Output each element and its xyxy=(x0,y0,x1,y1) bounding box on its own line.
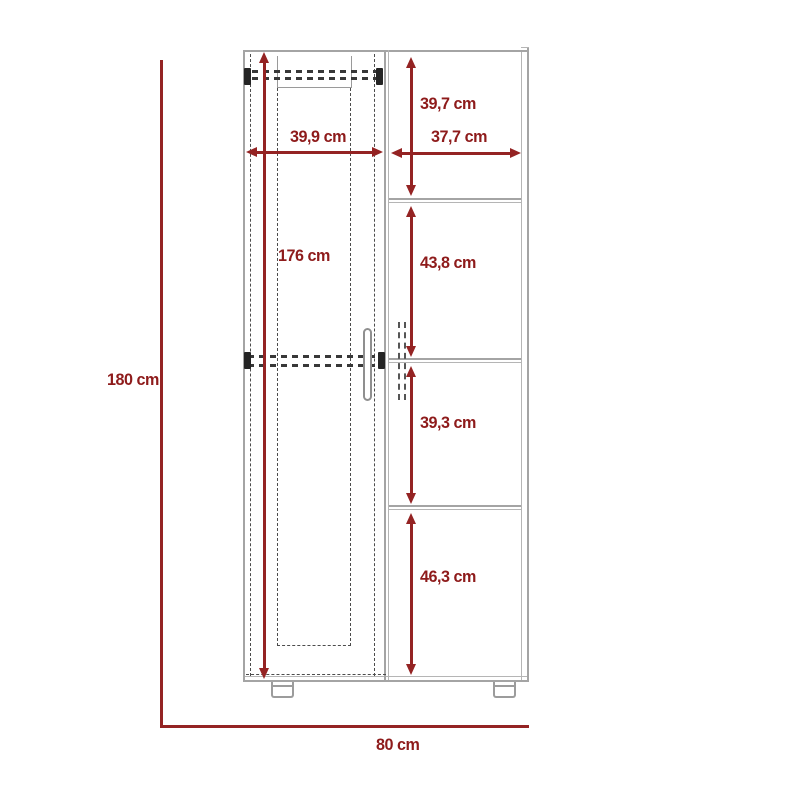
top-rod-bracket-right xyxy=(376,68,383,85)
label-left-section-width: 39,9 cm xyxy=(285,127,352,147)
label-overall-width: 80 cm xyxy=(376,735,419,755)
shelf-3-line xyxy=(389,505,521,507)
shelf-1-line xyxy=(389,198,521,200)
dim-shelf1-line xyxy=(410,67,413,187)
cabinet-right-edge-outer xyxy=(527,47,529,682)
interior-hidden-line-right xyxy=(350,88,351,646)
top-rod-dashes-lower xyxy=(252,77,380,80)
label-right-section-width: 37,7 cm xyxy=(426,127,493,147)
dim-shelf2-line xyxy=(410,216,413,347)
dim-left-width-line xyxy=(256,151,373,154)
label-right-shelf-2-height: 43,8 cm xyxy=(420,253,476,273)
label-right-shelf-4-height: 46,3 cm xyxy=(420,567,476,587)
cabinet-bottom-edge-inner xyxy=(245,676,527,677)
shelf-1-line-inner xyxy=(389,202,521,203)
dim-shelf3-arrow-down xyxy=(406,493,416,504)
label-overall-height: 180 cm xyxy=(107,370,159,390)
plinth-hidden-top xyxy=(277,645,351,646)
mid-rod-dashes-upper xyxy=(248,355,376,358)
dim-overall-height-line xyxy=(160,60,163,728)
label-interior-height: 176 cm xyxy=(278,246,330,266)
dim-shelf1-arrow-down xyxy=(406,185,416,196)
mid-rod-bracket-right xyxy=(378,352,385,369)
partition-hardware-marks-left xyxy=(398,322,400,400)
foot-left-line xyxy=(271,685,294,687)
cabinet-top-edge xyxy=(243,50,529,52)
center-partition-line-right xyxy=(388,50,389,680)
foot-left xyxy=(271,682,294,698)
dim-shelf2-arrow-down xyxy=(406,346,416,357)
shelf-2-line xyxy=(389,358,521,360)
top-rod-dashes-upper xyxy=(252,70,380,73)
wardrobe-dimension-diagram: 39,9 cm 37,7 cm 39,7 cm 43,8 cm 39,3 cm … xyxy=(0,0,800,800)
dim-overall-width-line xyxy=(160,725,529,728)
dim-shelf4-line xyxy=(410,523,413,665)
mid-rod-dashes-lower xyxy=(248,364,376,367)
top-rod-bracket-left xyxy=(244,68,251,85)
dim-shelf4-arrow-down xyxy=(406,664,416,675)
dim-interior-arrow-down xyxy=(259,668,269,679)
dim-right-width-line xyxy=(401,152,511,155)
label-right-shelf-1-height: 39,7 cm xyxy=(420,94,476,114)
mid-rod-bracket-left xyxy=(244,352,251,369)
foot-right xyxy=(493,682,516,698)
shelf-3-line-inner xyxy=(389,509,521,510)
shelf-2-line-inner xyxy=(389,362,521,363)
dim-shelf3-line xyxy=(410,376,413,494)
foot-right-line xyxy=(493,685,516,687)
label-right-shelf-3-height: 39,3 cm xyxy=(420,413,476,433)
cabinet-top-right-cap xyxy=(521,47,529,48)
interior-hidden-line-left xyxy=(277,88,278,646)
cabinet-right-edge-inner xyxy=(521,52,522,680)
door-handle xyxy=(363,328,372,401)
dim-left-width-arrow-right xyxy=(372,147,383,157)
dim-right-width-arrow-right xyxy=(510,148,521,158)
partition-hardware-marks-right xyxy=(404,322,406,400)
